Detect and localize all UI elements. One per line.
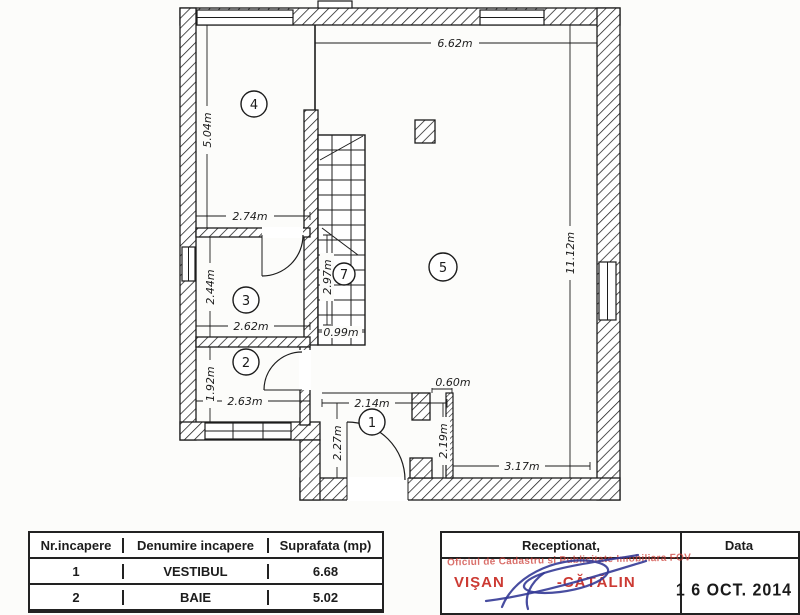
window-left <box>182 247 195 281</box>
svg-text:6.62m: 6.62m <box>437 37 472 50</box>
table-header-nr: Nr.incapere <box>30 538 122 553</box>
svg-text:3: 3 <box>242 294 250 309</box>
svg-text:2.97m: 2.97m <box>321 259 334 294</box>
dim-right-height: 11.12m <box>562 25 578 478</box>
room-label-4: 4 <box>241 91 267 117</box>
stamp-name-left: VIŞAN <box>454 574 505 591</box>
chimney-top <box>318 1 352 8</box>
room-label-5: 5 <box>429 253 457 281</box>
dim-room3-height: 2.44m <box>203 237 217 337</box>
dim-room4-width: 2.74m <box>196 209 310 223</box>
room-label-2: 2 <box>233 349 259 375</box>
room-label-3: 3 <box>233 287 259 313</box>
room-label-1: 1 <box>359 409 385 435</box>
dim-stairs-width: 0.99m <box>318 326 365 339</box>
table-row: 2 BAIE 5.02 <box>30 585 382 611</box>
stamp-name: VIŞAN-CĂTĂLIN <box>454 574 636 591</box>
cell-denumire: BAIE <box>122 590 267 605</box>
table-row: 1 VESTIBUL 6.68 <box>30 559 382 585</box>
reception-title: Receptionat, <box>442 538 680 553</box>
svg-text:4: 4 <box>250 98 258 113</box>
svg-text:2.62m: 2.62m <box>233 320 268 333</box>
date-stamp: 1 6 OCT. 2014 <box>674 581 794 601</box>
svg-text:2.63m: 2.63m <box>227 395 262 408</box>
door-opening-room3 <box>262 227 303 238</box>
stairs <box>318 135 365 345</box>
svg-text:0.60m: 0.60m <box>435 376 470 389</box>
dim-left-height: 5.04m <box>200 25 214 228</box>
dim-door-width: 0.60m <box>431 376 475 393</box>
svg-text:2.27m: 2.27m <box>331 425 344 460</box>
floor-plan: 6.62m 2.74m 2.62m 2.63m 0.99m 2.14m <box>0 0 800 600</box>
window-top-right <box>480 10 544 25</box>
door-room3 <box>262 235 303 276</box>
rooms-table: Nr.incapere Denumire incapere Suprafata … <box>28 531 384 613</box>
cell-nr: 2 <box>30 590 122 605</box>
chimney-flue <box>415 120 435 143</box>
reception-box: Receptionat, Data Oficiul de Cadastru si… <box>440 531 800 615</box>
cell-suprafata: 6.68 <box>267 564 382 579</box>
table-header-suprafata: Suprafata (mp) <box>267 538 382 553</box>
window-bottom-left <box>205 423 291 439</box>
dim-room1-left-height: 2.27m <box>330 403 344 478</box>
door-opening-room2 <box>299 350 311 390</box>
dim-top-width: 6.62m <box>315 36 597 50</box>
room-label-7: 7 <box>333 263 355 285</box>
svg-text:11.12m: 11.12m <box>564 232 577 274</box>
svg-text:2.74m: 2.74m <box>232 210 267 223</box>
cell-nr: 1 <box>30 564 122 579</box>
svg-text:1: 1 <box>368 416 376 431</box>
dim-bottom-width: 3.17m <box>453 459 590 473</box>
svg-text:2.14m: 2.14m <box>354 397 389 410</box>
table-header-denumire: Denumire incapere <box>122 538 267 553</box>
svg-text:0.99m: 0.99m <box>323 326 358 339</box>
dim-room2-height: 1.92m <box>203 347 217 422</box>
svg-text:2.19m: 2.19m <box>437 423 450 458</box>
svg-text:2: 2 <box>242 356 250 371</box>
svg-text:5: 5 <box>439 261 447 276</box>
svg-text:1.92m: 1.92m <box>204 366 217 401</box>
window-right <box>599 262 616 320</box>
data-header: Data <box>680 538 798 553</box>
cell-suprafata: 5.02 <box>267 590 382 605</box>
entrance-opening <box>347 477 408 501</box>
cell-denumire: VESTIBUL <box>122 564 267 579</box>
svg-text:5.04m: 5.04m <box>201 112 214 147</box>
window-top-left <box>197 10 293 25</box>
svg-text:2.44m: 2.44m <box>204 269 217 304</box>
dim-room3-width: 2.62m <box>196 319 310 333</box>
table-header-row: Nr.incapere Denumire incapere Suprafata … <box>30 533 382 559</box>
door-room2 <box>264 352 302 390</box>
svg-text:3.17m: 3.17m <box>504 460 539 473</box>
stamp-name-right: -CĂTĂLIN <box>557 574 636 591</box>
svg-text:7: 7 <box>340 268 348 283</box>
